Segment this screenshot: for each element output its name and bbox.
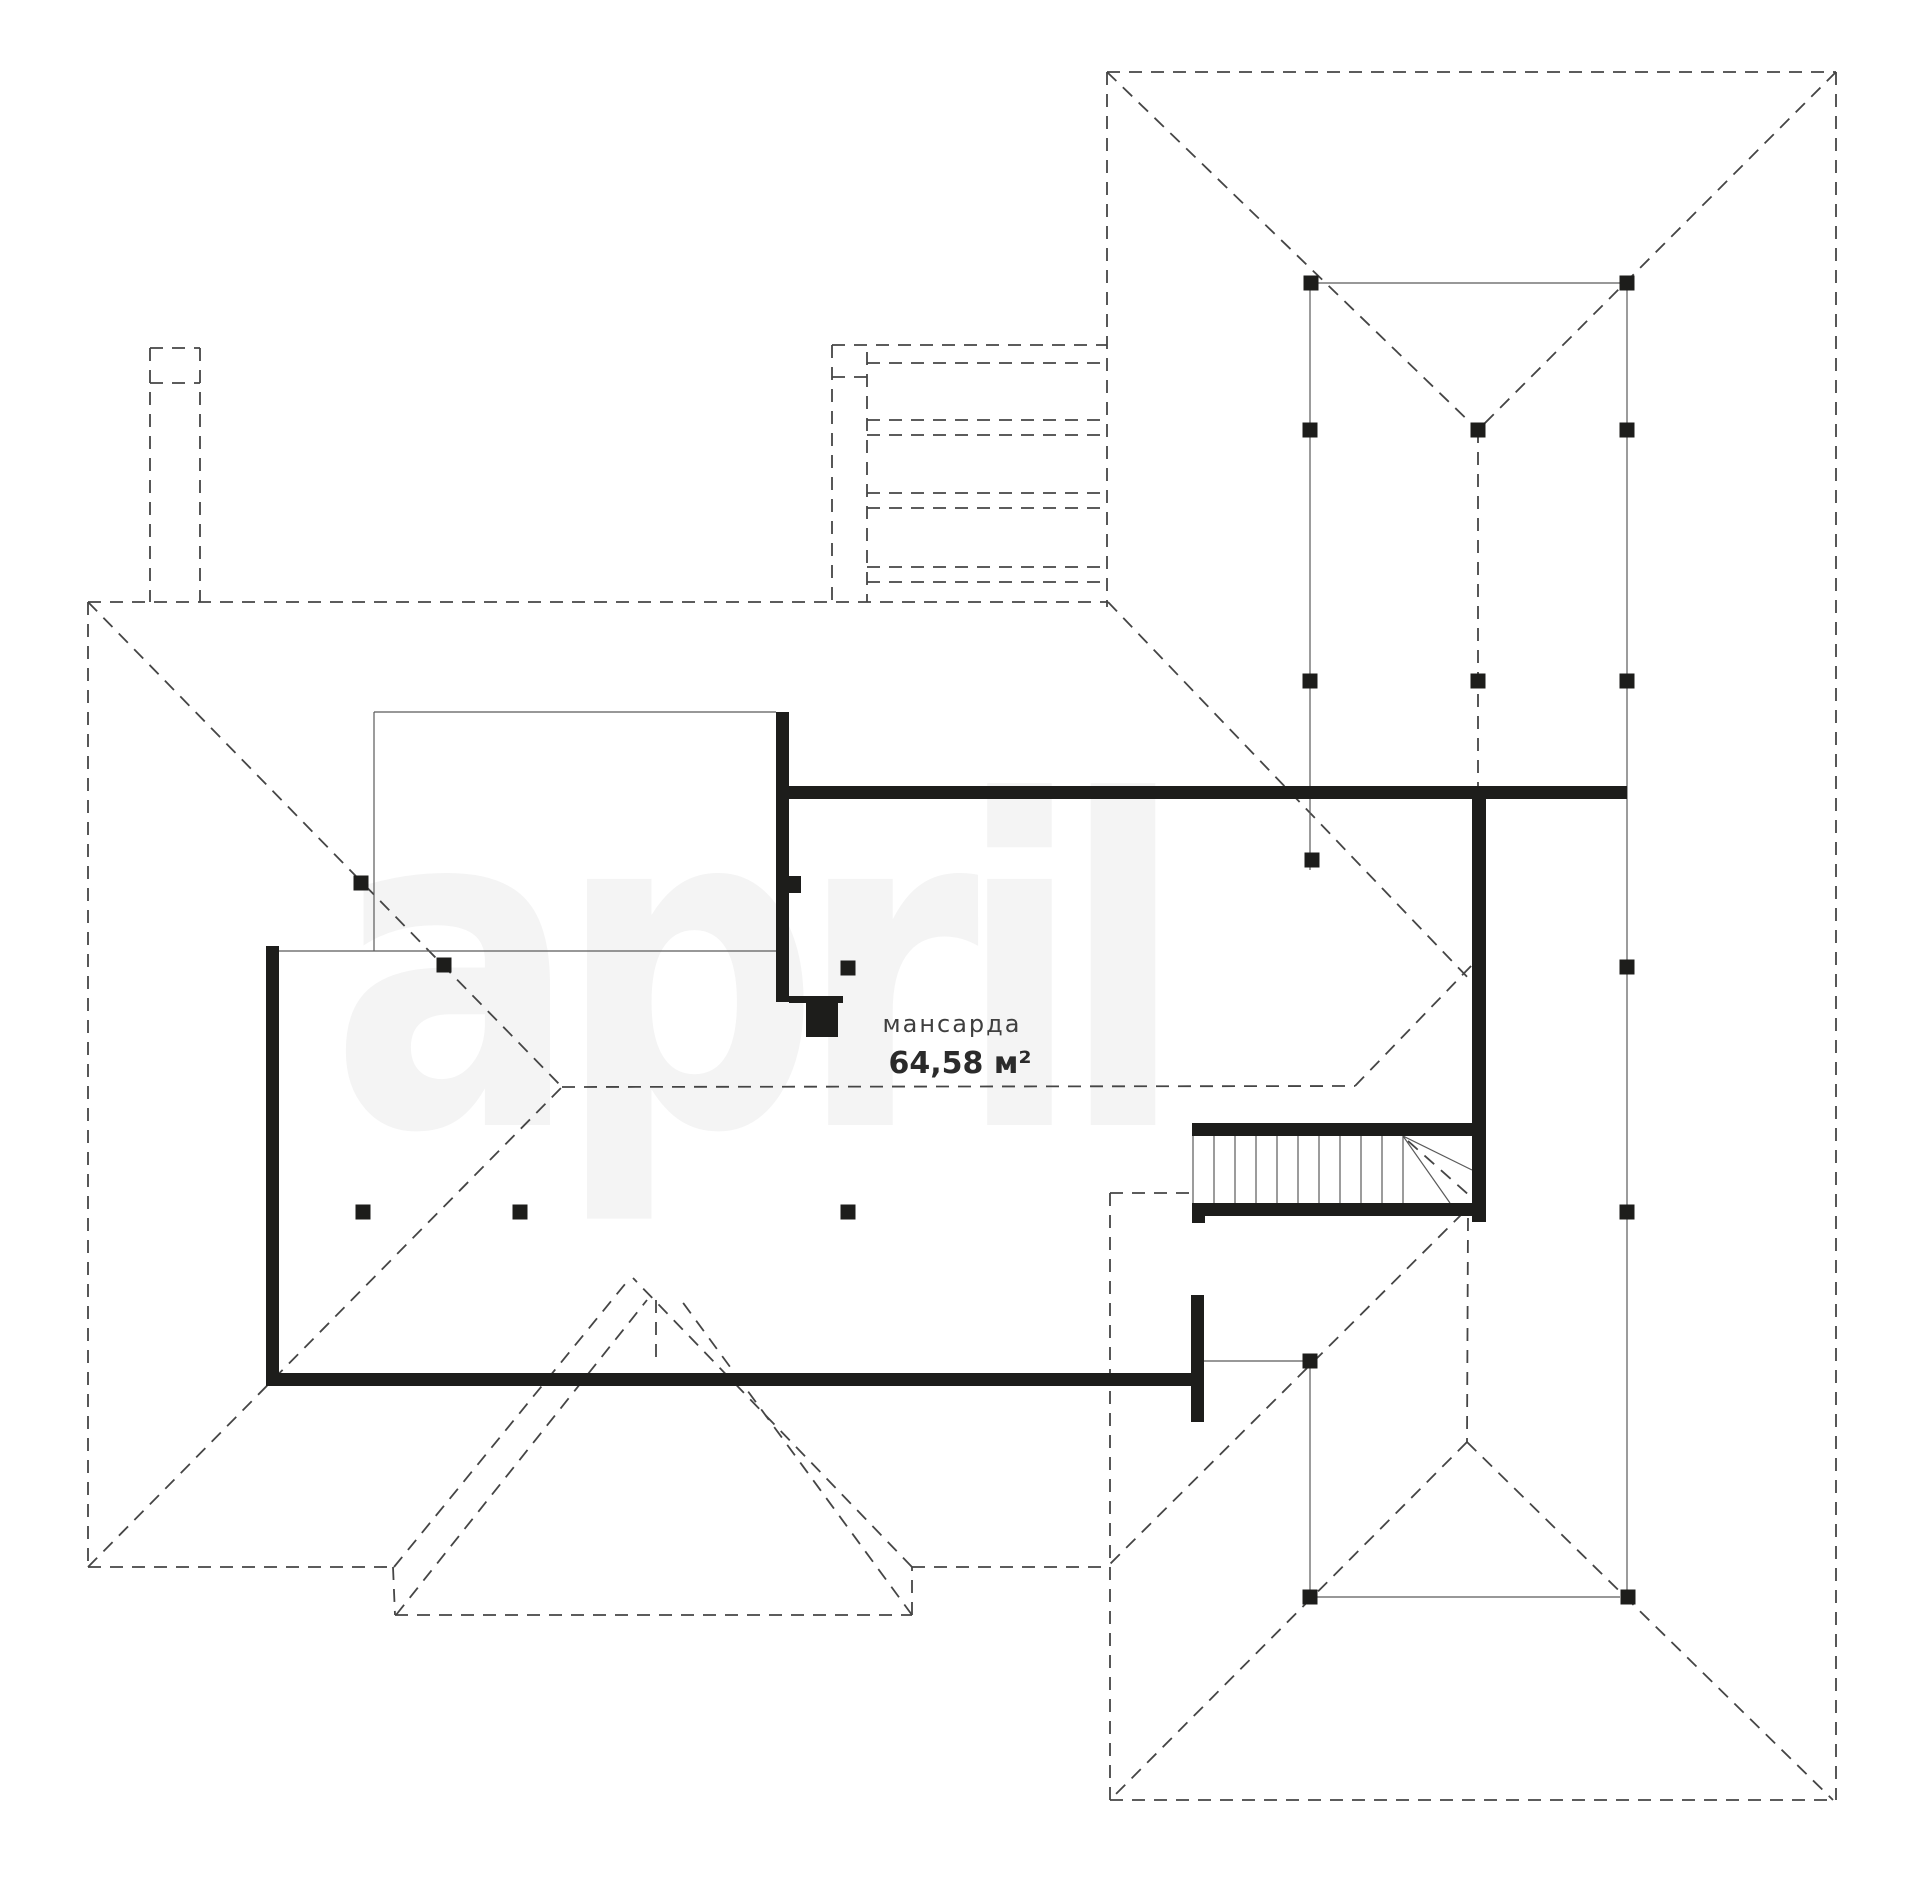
floor-plan-svg bbox=[0, 0, 1920, 1903]
roof-dashed-line bbox=[88, 1087, 562, 1567]
roof-dashed-line bbox=[633, 1278, 912, 1567]
roof-dashed-line bbox=[396, 1300, 647, 1615]
wall-segment bbox=[1192, 1123, 1486, 1136]
post bbox=[1471, 423, 1486, 438]
room-area-label: 64,58 м² bbox=[889, 1046, 1032, 1081]
roof-dashed-line bbox=[681, 1300, 912, 1615]
roof-dashed-line bbox=[1355, 965, 1472, 1086]
post bbox=[1304, 276, 1319, 291]
post bbox=[513, 1205, 528, 1220]
post bbox=[1303, 423, 1318, 438]
roof-dashed-line bbox=[1467, 1442, 1833, 1800]
post bbox=[1620, 1205, 1635, 1220]
roof-dashed-line bbox=[1110, 1213, 1463, 1564]
post bbox=[1620, 674, 1635, 689]
wall-segment bbox=[1192, 1203, 1486, 1216]
post bbox=[1303, 1590, 1318, 1605]
post bbox=[1303, 1354, 1318, 1369]
post bbox=[1305, 853, 1320, 868]
post bbox=[1620, 423, 1635, 438]
roof-dashed-line bbox=[88, 602, 562, 1087]
post bbox=[1620, 276, 1635, 291]
room-name-label: мансарда bbox=[883, 1010, 1022, 1038]
wall-segment bbox=[789, 876, 801, 893]
roof-dashed-line bbox=[562, 1086, 1355, 1087]
wall-segment bbox=[776, 712, 789, 1002]
thin-line bbox=[1403, 1136, 1450, 1203]
wall-segment bbox=[789, 996, 843, 1003]
post bbox=[356, 1205, 371, 1220]
thin-line bbox=[1403, 1136, 1472, 1170]
roof-dashed-line bbox=[393, 1567, 395, 1615]
post bbox=[437, 958, 452, 973]
wall-segment bbox=[266, 946, 279, 1386]
post bbox=[841, 1205, 856, 1220]
roof-dashed-line bbox=[394, 1278, 630, 1567]
post bbox=[841, 961, 856, 976]
wall-segment bbox=[776, 786, 1627, 799]
post bbox=[354, 876, 369, 891]
roof-dashed-line bbox=[1107, 72, 1478, 430]
wall-segment bbox=[1472, 786, 1486, 1136]
roof-dashed-line bbox=[1467, 1218, 1468, 1442]
post bbox=[1621, 1590, 1636, 1605]
post bbox=[1620, 960, 1635, 975]
post bbox=[1303, 674, 1318, 689]
wall-segment bbox=[266, 1373, 1191, 1386]
wall-segment bbox=[806, 1002, 838, 1037]
wall-segment bbox=[1472, 1123, 1486, 1222]
roof-dashed-line bbox=[1110, 1442, 1467, 1800]
wall-segment bbox=[1192, 1203, 1205, 1223]
post bbox=[1471, 674, 1486, 689]
roof-dashed-line bbox=[1478, 72, 1836, 430]
wall-segment bbox=[1191, 1295, 1204, 1422]
